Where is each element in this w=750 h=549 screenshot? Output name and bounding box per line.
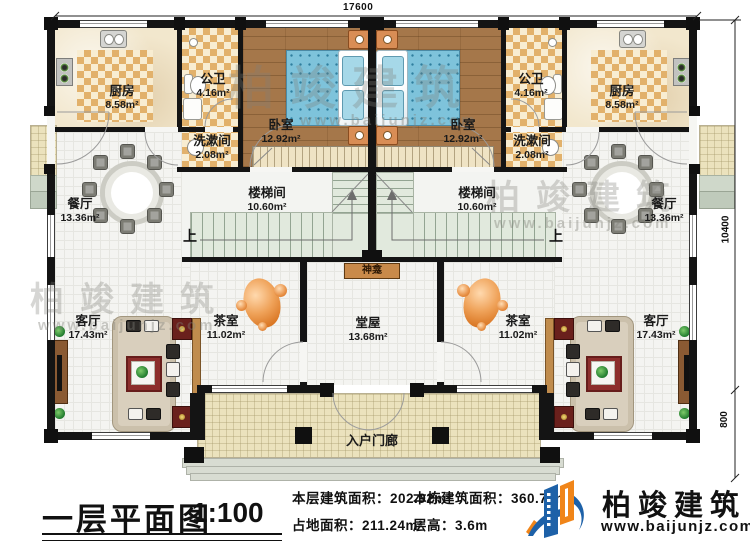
tea-decor-dot bbox=[497, 300, 508, 311]
wall-porch-connector-left bbox=[190, 393, 205, 440]
plant-icon bbox=[596, 366, 608, 378]
stair-treads-right bbox=[412, 212, 556, 258]
step-post-left bbox=[184, 447, 204, 463]
tv-cabinet-left bbox=[53, 340, 68, 404]
nightstand-left-bottom bbox=[348, 126, 370, 145]
pillow-icon bbox=[382, 90, 404, 120]
window-living-south-right bbox=[594, 432, 652, 440]
kitchen-sink-left bbox=[100, 30, 127, 48]
window-hall-south-right bbox=[457, 385, 532, 393]
washing-machine-right bbox=[544, 98, 563, 120]
stair-up-label-right: 上 bbox=[549, 226, 563, 246]
cushion-icon bbox=[566, 362, 580, 377]
room-label-bedroom-left: 卧室 12.92m² bbox=[261, 118, 300, 146]
cushion-icon bbox=[585, 408, 600, 420]
door-gap-bedroom-left bbox=[250, 167, 292, 172]
room-label-dining-right: 餐厅 13.36m² bbox=[644, 197, 683, 225]
porch-column-left bbox=[295, 427, 312, 444]
cushion-icon bbox=[166, 344, 180, 359]
door-gap-kitchen-left bbox=[145, 127, 178, 132]
window-living-south-left bbox=[92, 432, 150, 440]
room-label-kitchen-right: 厨房 8.58m² bbox=[605, 84, 638, 112]
pillow-icon bbox=[342, 90, 364, 120]
dimension-right-porch-value: 800 bbox=[719, 411, 730, 428]
cushion-icon bbox=[566, 344, 580, 359]
column-block bbox=[44, 106, 55, 116]
tea-decor-dot bbox=[236, 300, 247, 311]
wall-kitchen-bath-right bbox=[562, 28, 567, 132]
chair-icon bbox=[584, 208, 599, 223]
room-label-living-right: 客厅 17.43m² bbox=[636, 314, 675, 342]
window-kitchen-left bbox=[80, 20, 147, 28]
entry-door-post-left bbox=[320, 383, 334, 397]
sink-bowl-icon bbox=[104, 34, 114, 45]
lamp-icon bbox=[355, 35, 364, 44]
title-underline bbox=[42, 533, 282, 541]
dimension-tick bbox=[731, 16, 739, 24]
room-label-bedroom-right: 卧室 12.92m² bbox=[443, 118, 482, 146]
sink-bowl-icon bbox=[633, 34, 643, 45]
stair-upper-run-right bbox=[376, 172, 414, 214]
lamp-icon bbox=[383, 131, 392, 140]
porch-column-right bbox=[432, 427, 449, 444]
column-block bbox=[689, 106, 700, 116]
chair-icon bbox=[82, 182, 97, 197]
washing-machine-left bbox=[183, 98, 202, 120]
room-label-hall: 堂屋 13.68m² bbox=[348, 316, 387, 344]
tea-decor-dot bbox=[477, 322, 486, 331]
window-dining-right bbox=[689, 215, 697, 257]
pillow-icon bbox=[382, 56, 404, 86]
wall-kitchen-bath-left bbox=[177, 28, 182, 132]
wall-stair-south-left bbox=[182, 257, 368, 262]
door-gap-bedroom-right bbox=[452, 167, 494, 172]
entry-door-post-right bbox=[410, 383, 424, 397]
room-label-living-left: 客厅 17.43m² bbox=[68, 314, 107, 342]
cushion-icon bbox=[566, 382, 580, 397]
room-label-kitchen-left: 厨房 8.58m² bbox=[105, 84, 138, 112]
speaker-right-top bbox=[554, 318, 574, 340]
cushion-icon bbox=[128, 408, 143, 420]
window-living-right bbox=[689, 285, 697, 340]
tea-decor-dot bbox=[258, 322, 267, 331]
burner-icon bbox=[677, 74, 686, 83]
cushion-icon bbox=[126, 320, 141, 332]
burner-icon bbox=[60, 63, 69, 72]
speaker-cone-icon bbox=[561, 326, 567, 332]
wall-washroom-south-left bbox=[177, 167, 243, 172]
stove-left bbox=[56, 58, 73, 86]
room-label-tea-left: 茶室 11.02m² bbox=[207, 314, 246, 342]
speaker-left-top bbox=[172, 318, 192, 340]
column-block bbox=[559, 17, 570, 30]
cushion-icon bbox=[146, 408, 161, 420]
wardrobe-left bbox=[252, 146, 370, 168]
chair-icon bbox=[584, 155, 599, 170]
column-block bbox=[362, 250, 382, 262]
sink-bowl-icon bbox=[114, 34, 124, 45]
cushion-icon bbox=[166, 382, 180, 397]
wall-hall-south bbox=[532, 385, 547, 393]
sink-bowl-icon bbox=[623, 34, 633, 45]
door-gap-side-porch-left bbox=[47, 112, 55, 164]
column-block bbox=[686, 17, 700, 30]
door-gap-side-porch-right bbox=[689, 112, 697, 164]
chair-icon bbox=[120, 219, 135, 234]
tea-decor-dot bbox=[274, 284, 287, 297]
wall-washroom-south-right bbox=[501, 167, 567, 172]
column-block bbox=[360, 17, 384, 30]
wall-hall-south bbox=[197, 385, 212, 393]
cushion-icon bbox=[166, 362, 180, 377]
cushion-icon bbox=[605, 320, 620, 332]
chair-icon bbox=[649, 182, 664, 197]
side-porch-right-band2 bbox=[699, 191, 735, 209]
column-block bbox=[689, 164, 700, 174]
porch-step-3 bbox=[190, 473, 556, 481]
chair-icon bbox=[147, 155, 162, 170]
column-block bbox=[44, 429, 58, 443]
door-gap-hall-west bbox=[300, 342, 307, 382]
room-label-dining-left: 餐厅 13.36m² bbox=[60, 197, 99, 225]
column-block bbox=[44, 17, 58, 30]
stove-right bbox=[673, 58, 690, 86]
chair-icon bbox=[120, 144, 135, 159]
brand-url: www.baijunjz.com bbox=[601, 518, 750, 535]
column-block bbox=[235, 17, 246, 30]
lamp-icon bbox=[383, 35, 392, 44]
plant-icon bbox=[136, 366, 148, 378]
speaker-right-bottom bbox=[554, 406, 574, 428]
room-label-bath-left: 公卫 4.16m² bbox=[196, 72, 229, 100]
room-label-tea-right: 茶室 11.02m² bbox=[499, 314, 538, 342]
cushion-icon bbox=[587, 320, 602, 332]
tea-decor-dot bbox=[457, 284, 470, 297]
window-dining-left bbox=[47, 215, 55, 257]
speaker-cone-icon bbox=[179, 414, 185, 420]
chair-icon bbox=[572, 182, 587, 197]
room-label-stairwell-left: 楼梯间 10.60m² bbox=[247, 186, 286, 214]
chair-icon bbox=[159, 182, 174, 197]
door-gap-kitchen-right bbox=[566, 127, 599, 132]
dimension-tick bbox=[731, 386, 739, 394]
plant-icon bbox=[54, 326, 65, 337]
wall-kitchen-south-right bbox=[599, 127, 689, 132]
chair-icon bbox=[93, 155, 108, 170]
stair-treads-left bbox=[190, 212, 334, 258]
nightstand-left-top bbox=[348, 30, 370, 49]
chair-icon bbox=[611, 144, 626, 159]
room-label-bath-right: 公卫 4.16m² bbox=[514, 72, 547, 100]
speaker-left-bottom bbox=[172, 406, 192, 428]
shrine-cabinet: 神龛 bbox=[344, 263, 400, 279]
wardrobe-right bbox=[376, 146, 494, 168]
nightstand-right-bottom bbox=[376, 126, 398, 145]
side-porch-right bbox=[699, 125, 735, 177]
tv-icon bbox=[57, 355, 62, 391]
door-gap-hall-east bbox=[437, 342, 444, 382]
dimension-right-main-value: 10400 bbox=[720, 216, 731, 244]
dimension-tick bbox=[731, 474, 739, 482]
room-label-entry-porch: 入户门廊 bbox=[346, 433, 398, 449]
stat-story-height: 层高：3.6m bbox=[413, 514, 488, 534]
cushion-icon bbox=[603, 408, 618, 420]
window-kitchen-right bbox=[597, 20, 664, 28]
cushion-icon bbox=[144, 320, 159, 332]
ceiling-light-icon bbox=[548, 38, 557, 47]
nightstand-right-top bbox=[376, 30, 398, 49]
column-block bbox=[686, 429, 700, 443]
window-living-left bbox=[47, 285, 55, 340]
window-hall-south-left bbox=[212, 385, 287, 393]
burner-icon bbox=[677, 63, 686, 72]
door-gap-bath-left bbox=[205, 127, 233, 132]
speaker-cone-icon bbox=[179, 326, 185, 332]
chair-icon bbox=[147, 208, 162, 223]
wall-bath-bedroom-left bbox=[238, 28, 243, 172]
column-block bbox=[498, 17, 509, 30]
plant-icon bbox=[54, 408, 65, 419]
column-block bbox=[174, 17, 185, 30]
wall-bath-bedroom-right bbox=[501, 28, 506, 172]
plan-scale: 1:100 bbox=[192, 497, 264, 529]
step-post-right bbox=[540, 447, 560, 463]
chair-icon bbox=[638, 155, 653, 170]
room-label-stairwell-right: 楼梯间 10.60m² bbox=[457, 186, 496, 214]
stair-upper-run-left bbox=[332, 172, 370, 214]
wall-stair-south-right bbox=[376, 257, 562, 262]
lamp-icon bbox=[355, 131, 364, 140]
brand-logo-icon bbox=[518, 476, 598, 544]
ceiling-light-icon bbox=[189, 38, 198, 47]
floor-plan-canvas: 神龛 bbox=[0, 0, 750, 549]
pillow-icon bbox=[342, 56, 364, 86]
wall-kitchen-south-left bbox=[55, 127, 145, 132]
shrine-label: 神龛 bbox=[362, 265, 382, 276]
door-gap-bath-right bbox=[511, 127, 539, 132]
window-bedroom-right bbox=[396, 20, 478, 28]
room-label-washroom-right: 洗漱间 2.08m² bbox=[513, 134, 551, 162]
window-bedroom-left bbox=[266, 20, 348, 28]
speaker-cone-icon bbox=[561, 414, 567, 420]
stat-footprint-area: 占地面积：211.24m² bbox=[292, 514, 423, 534]
wall-party-center bbox=[368, 20, 376, 262]
dimension-top-value: 17600 bbox=[343, 2, 373, 13]
burner-icon bbox=[60, 74, 69, 83]
stair-up-label-left: 上 bbox=[183, 226, 197, 246]
room-label-washroom-left: 洗漱间 2.08m² bbox=[193, 134, 231, 162]
wall-porch-connector-right bbox=[539, 393, 554, 440]
chair-icon bbox=[611, 219, 626, 234]
kitchen-sink-right bbox=[619, 30, 646, 48]
column-block bbox=[44, 164, 55, 174]
